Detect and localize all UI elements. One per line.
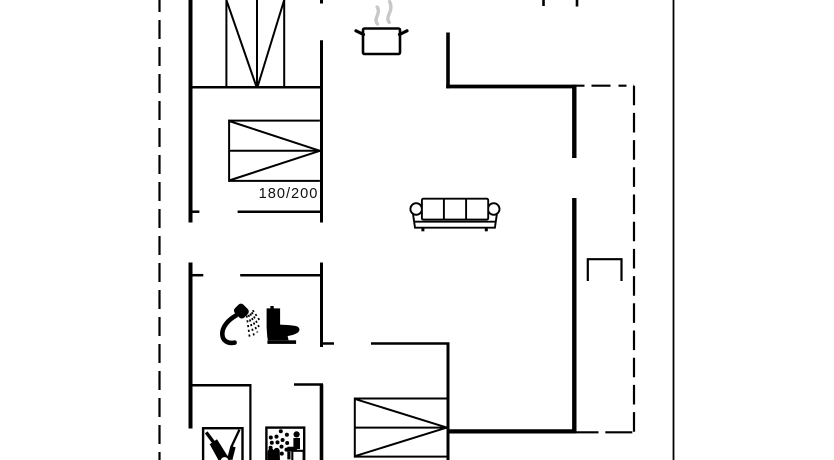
svg-text:180/200: 180/200	[259, 186, 319, 202]
